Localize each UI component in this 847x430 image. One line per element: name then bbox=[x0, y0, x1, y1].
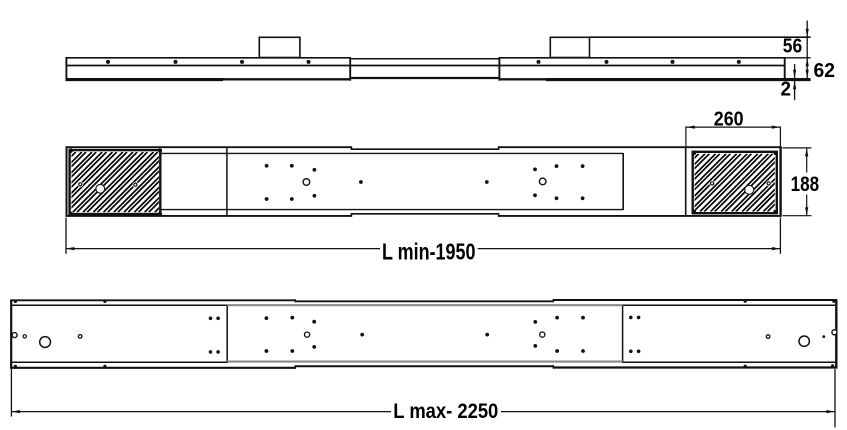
svg-text:2: 2 bbox=[781, 78, 792, 100]
svg-text:L min-1950: L min-1950 bbox=[382, 238, 476, 264]
svg-text:188: 188 bbox=[791, 172, 820, 196]
svg-text:56: 56 bbox=[783, 36, 802, 58]
svg-text:260: 260 bbox=[714, 107, 744, 130]
svg-text:62: 62 bbox=[814, 60, 836, 82]
svg-text:L max- 2250: L max- 2250 bbox=[393, 399, 498, 423]
